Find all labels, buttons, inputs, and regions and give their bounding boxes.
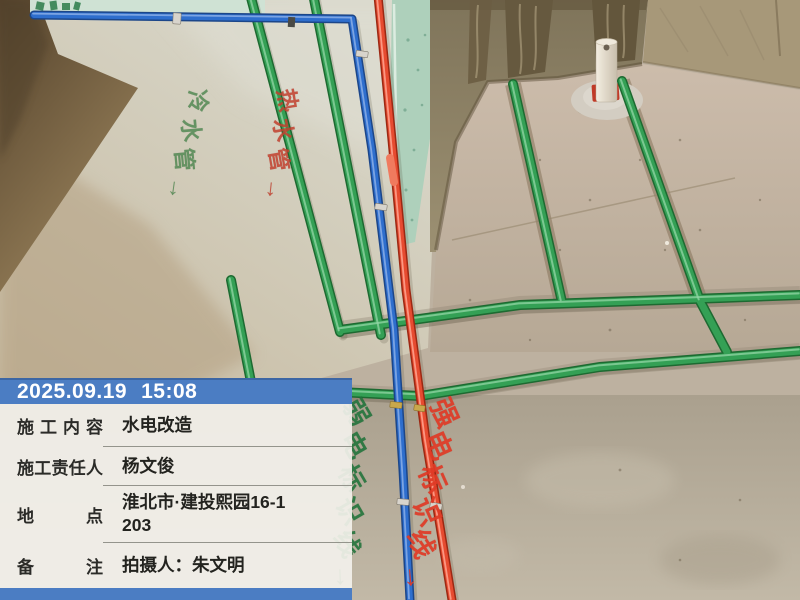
info-label: 地点: [17, 502, 103, 527]
info-row-responsible: 施工责任人 杨文俊: [0, 447, 352, 486]
watermark-date: 2025.09.19: [17, 380, 127, 404]
timestamp-bar: 2025.09.19 15:08: [0, 378, 352, 404]
watermark-info-panel: 施工内容 水电改造 施工责任人 杨文俊 地点 淮北市·建投熙园16-1 203 …: [0, 404, 352, 588]
construction-photo: .pg-d{stroke:#1d6a31;stroke-width:10;fil…: [0, 0, 800, 600]
info-value: 水电改造: [103, 404, 352, 447]
watermark-time: 15:08: [141, 380, 197, 404]
info-row-content: 施工内容 水电改造: [0, 404, 352, 447]
info-value: 杨文俊: [103, 447, 352, 486]
watermark-bottom-strip: [0, 588, 352, 600]
info-label: 施工内容: [17, 413, 103, 438]
info-value: 淮北市·建投熙园16-1 203: [103, 486, 352, 543]
info-label: 施工责任人: [17, 454, 103, 479]
info-value: 拍摄人：朱文明: [103, 543, 352, 588]
info-row-remarks: 备注 拍摄人：朱文明: [0, 543, 352, 588]
info-row-location: 地点 淮北市·建投熙园16-1 203: [0, 486, 352, 543]
info-label: 备注: [17, 553, 103, 578]
